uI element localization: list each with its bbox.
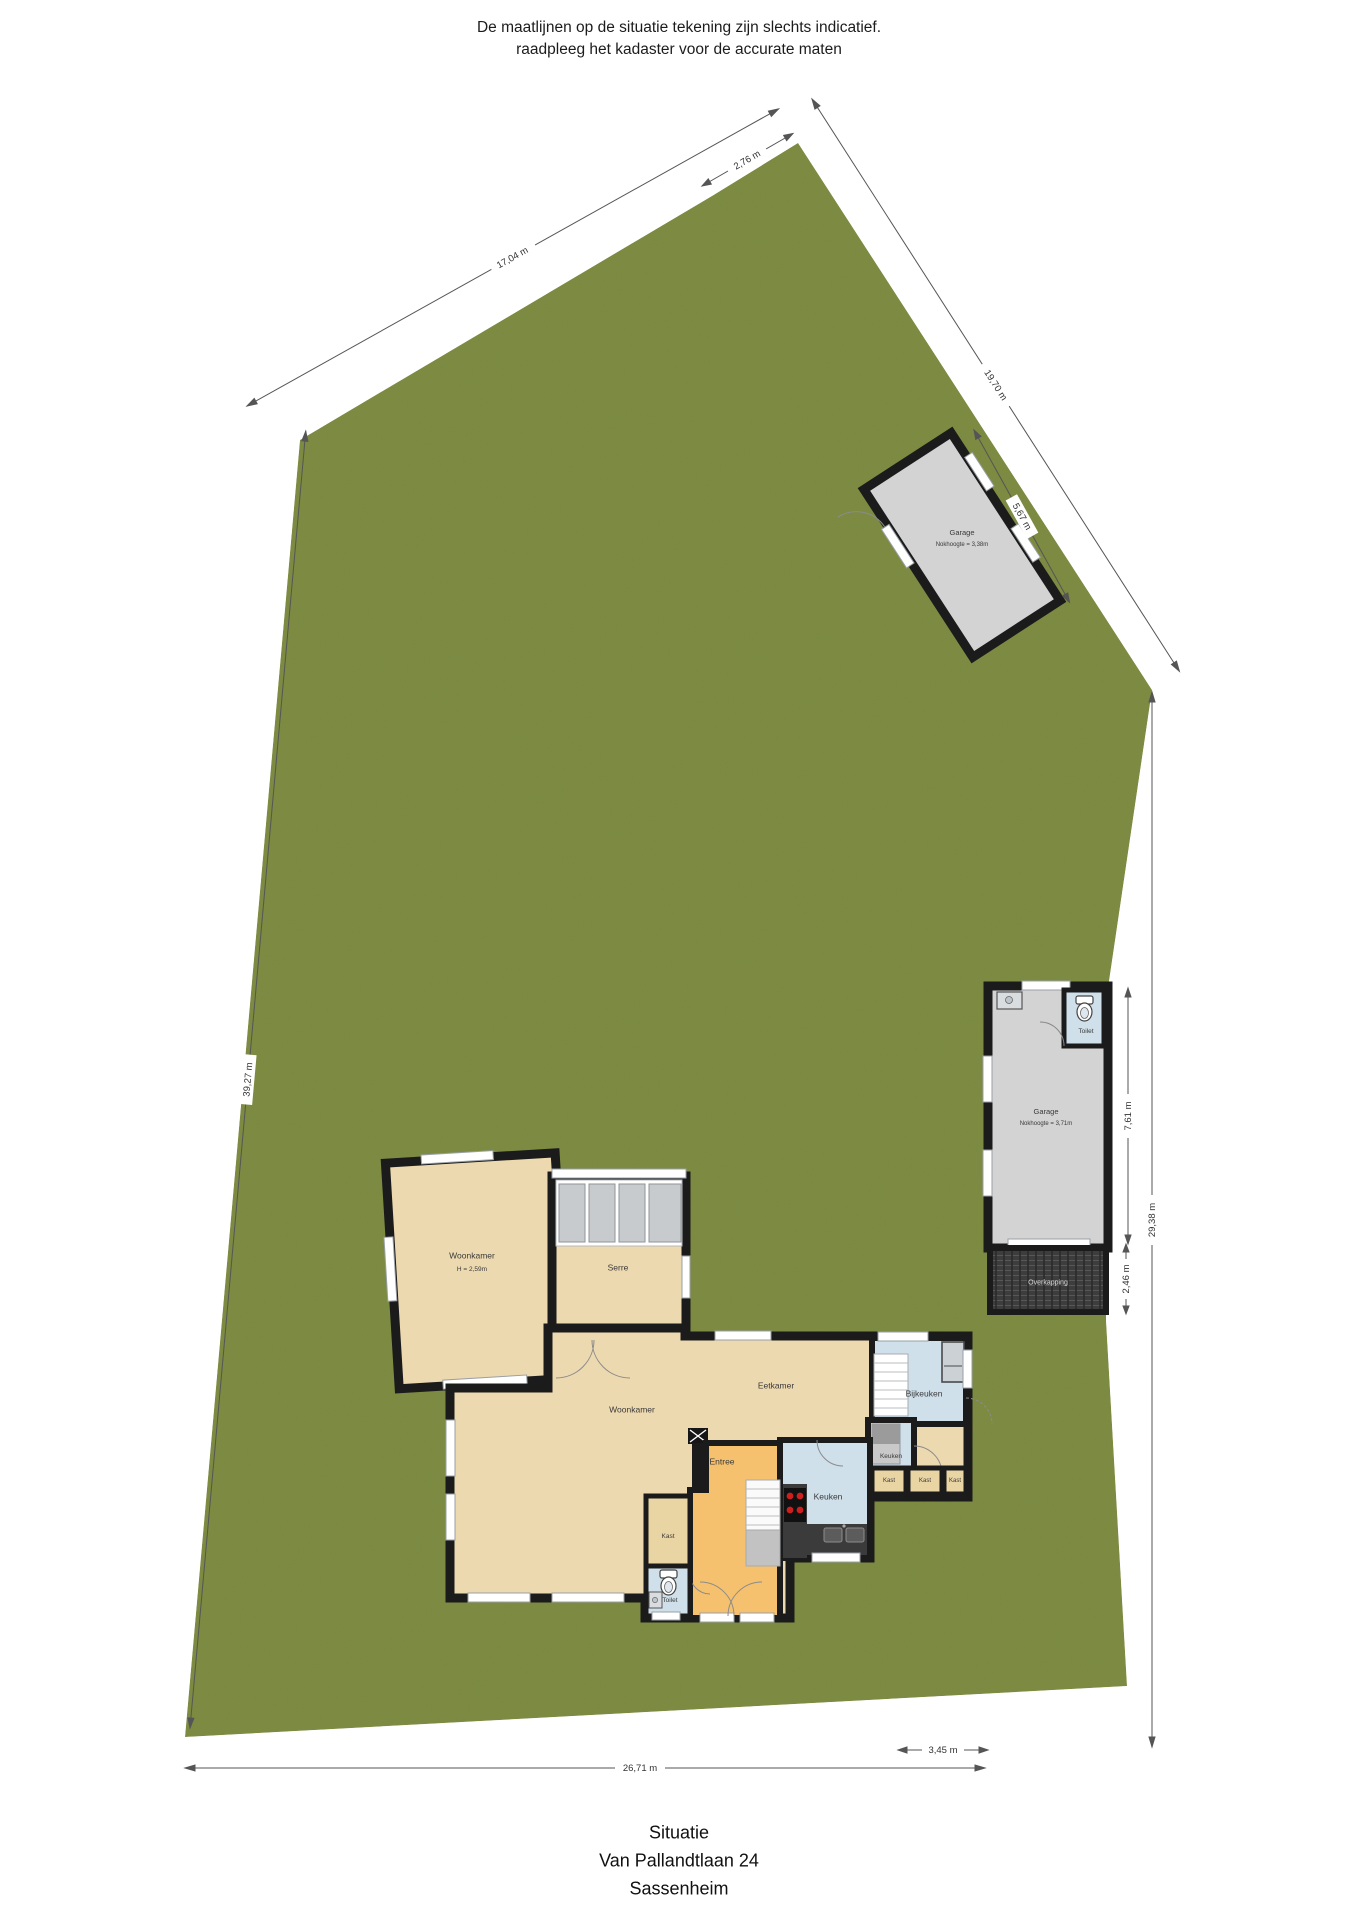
title-situatie: Situatie: [649, 1821, 709, 1844]
room-label-keuken: Keuken: [814, 1491, 843, 1502]
room-label-woonkamer: Woonkamer: [609, 1404, 655, 1415]
sink-icon: [997, 992, 1022, 1009]
dim-bottom-edge: 26,71 m: [185, 1762, 985, 1775]
room-label-bijkeuken: Bijkeuken: [906, 1388, 943, 1399]
svg-text:7,61 m: 7,61 m: [1123, 1101, 1134, 1130]
toilet-icon: [660, 1570, 677, 1595]
room-label-garage-right: Garage: [1033, 1107, 1058, 1117]
room-label-serre: Serre: [608, 1262, 629, 1273]
fridge-icon: [942, 1342, 964, 1382]
window: [715, 1331, 771, 1340]
window: [812, 1553, 860, 1562]
room-label-kast-3: Kast: [949, 1478, 961, 1486]
window: [446, 1494, 455, 1540]
window: [552, 1593, 624, 1602]
toilet-icon: [1076, 996, 1093, 1021]
window: [700, 1613, 734, 1622]
room-label-garage-top: Garage: [949, 528, 974, 538]
room-sub-garage-top: Nokhoogte = 3,38m: [936, 542, 989, 550]
title-address: Van Pallandtlaan 24: [599, 1849, 759, 1872]
dim-overkapping-height: 2,46 m: [1120, 1244, 1133, 1314]
room-sub-garage-right: Nokhoogte = 3,71m: [1020, 1121, 1073, 1129]
garage-right-left-window: [983, 1150, 992, 1196]
skylight-panels: [556, 1180, 682, 1246]
room-label-kast-2: Kast: [919, 1478, 931, 1486]
window: [682, 1256, 690, 1298]
title-city: Sassenheim: [629, 1877, 728, 1900]
window: [552, 1169, 686, 1178]
window: [446, 1420, 455, 1476]
window: [878, 1332, 928, 1341]
room-label-entree: Entree: [709, 1456, 734, 1467]
dim-bottom-right-segment: 3,45 m: [898, 1744, 988, 1757]
window: [468, 1593, 530, 1602]
room-label-overkapping: Overkapping: [1028, 1278, 1068, 1287]
svg-text:2,46 m: 2,46 m: [1121, 1264, 1132, 1293]
room-label-kast-1: Kast: [883, 1478, 895, 1486]
house-serre-block: [552, 1169, 690, 1330]
svg-text:17,04 m: 17,04 m: [495, 245, 530, 271]
dim-garage-right-height: 7,61 m: [1122, 988, 1135, 1244]
room-label-eetkamer: Eetkamer: [758, 1380, 794, 1391]
site-plan-canvas: 17,04 m 2,76 m 19,70 m 5,67 m 39,27 m: [0, 0, 1358, 1920]
dim-right-edge: 29,38 m: [1146, 692, 1159, 1747]
disclaimer-line-2: raadpleeg het kadaster voor de accurate …: [516, 40, 842, 60]
stairs-icon: [874, 1354, 908, 1416]
room-label-keuken-small: Keuken: [880, 1453, 902, 1461]
window: [740, 1613, 774, 1622]
stairs-icon: [746, 1480, 780, 1566]
window: [652, 1612, 680, 1620]
svg-text:26,71 m: 26,71 m: [623, 1763, 657, 1774]
room-label-kast-hal: Kast: [661, 1533, 674, 1541]
garage-right-left-window: [983, 1056, 992, 1102]
counter: [872, 1424, 900, 1444]
situation-plan-page: 17,04 m 2,76 m 19,70 m 5,67 m 39,27 m: [0, 0, 1358, 1920]
window: [963, 1350, 972, 1388]
room-label-toilet-garage: Toilet: [1078, 1028, 1093, 1036]
room-label-toilet: Toilet: [662, 1597, 677, 1605]
cooktop-icon: [784, 1488, 806, 1522]
disclaimer-line-1: De maatlijnen op de situatie tekening zi…: [477, 18, 881, 38]
room-label-woonkamer-upper: Woonkamer: [449, 1250, 495, 1261]
svg-text:29,38 m: 29,38 m: [1147, 1203, 1158, 1237]
kast-hal-room: [646, 1496, 690, 1566]
svg-text:3,45 m: 3,45 m: [928, 1745, 957, 1756]
room-sub-woonkamer-upper: H = 2,59m: [457, 1266, 487, 1274]
sink-icon: [649, 1592, 662, 1608]
